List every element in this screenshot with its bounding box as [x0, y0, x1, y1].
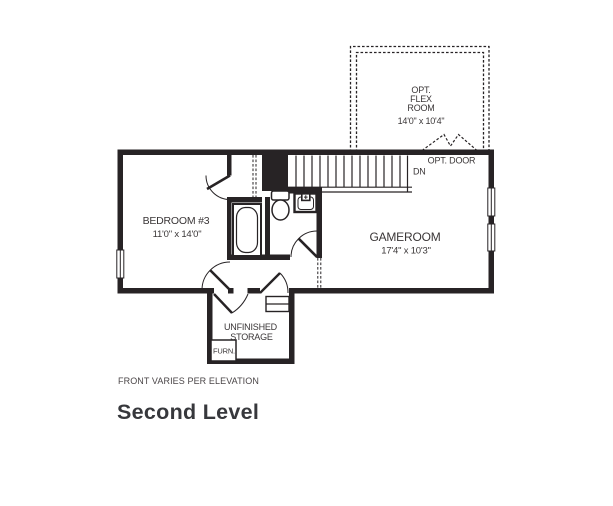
- gameroom-window-lower: [488, 224, 495, 251]
- storage-label-line1: UNFINISHED: [224, 322, 278, 332]
- bottom-wall-left-segment: [118, 288, 215, 294]
- page-title: Second Level: [117, 400, 259, 425]
- opt-door-dashed-arcs: [422, 135, 477, 151]
- closet-bottom-wall: [227, 197, 262, 203]
- storage-shelf: [266, 297, 289, 312]
- gameroom-window-upper: [488, 188, 495, 216]
- opt-door-label: OPT. DOOR: [428, 156, 476, 166]
- floor-plan-drawing: OPT. FLEX ROOM 14'0" x 10'4" OPT. DOOR D…: [0, 0, 613, 372]
- bedroom-bath-wall: [227, 197, 232, 260]
- plan-labels: OPT. FLEX ROOM 14'0" x 10'4" OPT. DOOR D…: [143, 85, 476, 356]
- stair-side-wall-solid: [262, 155, 288, 191]
- storage-right-wall: [289, 294, 295, 365]
- gameroom-name: GAMEROOM: [369, 230, 440, 244]
- right-wall: [489, 150, 495, 294]
- top-wall: [118, 150, 495, 156]
- sink: [295, 194, 317, 213]
- bottom-wall-mid-segment: [248, 288, 261, 294]
- stair-treads: [296, 156, 400, 188]
- opt-door-swing-symbol: [422, 135, 477, 151]
- stairs-dn-label: DN: [413, 167, 426, 177]
- flex-room-dimensions: 14'0" x 10'4": [398, 116, 445, 126]
- tub-toilet-divider-wall: [265, 197, 270, 258]
- hall-gameroom-opening: [318, 258, 321, 288]
- bedroom3-name: BEDROOM #3: [143, 215, 210, 227]
- bathtub: [233, 204, 261, 256]
- floor-plan-page: OPT. FLEX ROOM 14'0" x 10'4" OPT. DOOR D…: [0, 0, 613, 506]
- bathroom-door: [291, 231, 317, 257]
- toilet: [272, 191, 290, 220]
- furnace-label: FURN.: [213, 347, 235, 356]
- closet-door: [206, 176, 230, 200]
- bottom-wall-right-segment: [289, 288, 494, 294]
- flex-room-label-line3: ROOM: [407, 103, 434, 113]
- bedroom-closet-wall-upper: [227, 155, 232, 176]
- storage-label-line2: STORAGE: [230, 332, 273, 342]
- bedroom3-dimensions: 11'0" x 14'0": [153, 229, 202, 240]
- bedroom-window: [117, 250, 124, 278]
- closet-rod-dashed-lines: [253, 155, 256, 199]
- gameroom-dimensions: 17'4" x 10'3": [381, 246, 431, 257]
- hall-storage-door: [260, 273, 288, 293]
- bedroom-door: [202, 262, 230, 290]
- staircase: [288, 156, 412, 193]
- elevation-note: FRONT VARIES PER ELEVATION: [118, 376, 259, 386]
- storage-door: [214, 294, 248, 313]
